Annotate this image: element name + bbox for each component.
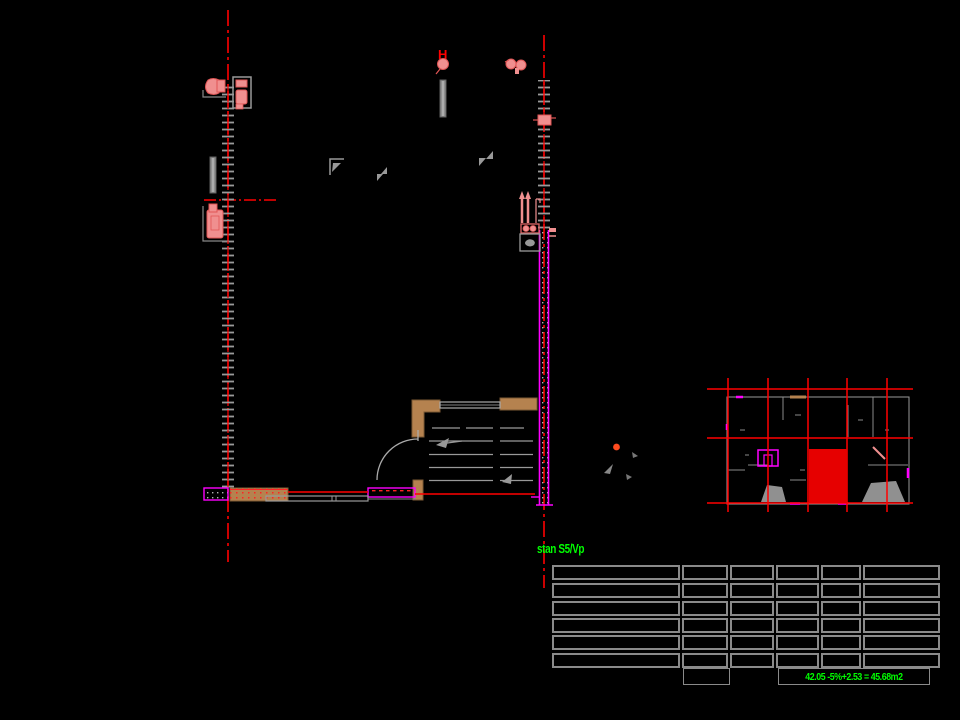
area-formula-text: 42.05 -5%+2.53 = 45.68m2 <box>805 671 902 683</box>
table-cell <box>863 601 940 616</box>
table-cell <box>682 601 728 616</box>
table-cell <box>863 565 940 580</box>
area-table: 42.05 -5%+2.53 = 45.68m2 <box>552 563 944 688</box>
table-cell <box>776 653 819 668</box>
apartment-title-label: stan S5/Vp <box>537 542 584 556</box>
bottom-wall-left-masonry <box>204 488 228 500</box>
radiator-left <box>210 157 216 193</box>
table-cell <box>730 601 774 616</box>
table-cell <box>863 618 940 633</box>
table-cell <box>821 653 861 668</box>
table-cell <box>552 583 680 598</box>
table-cell <box>552 635 680 650</box>
annotation-mark <box>604 444 638 480</box>
table-cell <box>682 635 728 650</box>
table-cell <box>552 601 680 616</box>
area-formula-cell: 42.05 -5%+2.53 = 45.68m2 <box>778 668 930 685</box>
wall-lamp-symbol-2 <box>479 151 493 166</box>
table-cell <box>821 565 861 580</box>
table-cell <box>776 583 819 598</box>
table-cell <box>821 601 861 616</box>
meter-panel <box>521 224 539 233</box>
corner-lamp-symbol <box>330 159 344 175</box>
table-cell <box>682 653 728 668</box>
entrance-wall-wood <box>412 398 537 500</box>
right-exterior-wall <box>531 230 553 505</box>
window-top <box>440 402 500 408</box>
shaft-box <box>520 234 540 251</box>
table-cell <box>682 618 728 633</box>
stairs <box>429 428 533 481</box>
table-cell <box>821 635 861 650</box>
table-cell <box>730 653 774 668</box>
radiator-top <box>440 80 446 117</box>
table-cell <box>682 583 728 598</box>
sink-cabinet-fixture <box>233 77 251 109</box>
table-cell <box>863 635 940 650</box>
table-cell <box>552 565 680 580</box>
table-cell <box>682 565 728 580</box>
entry-wall-hatched <box>368 488 416 499</box>
wall-lamp-symbol-1 <box>377 167 387 181</box>
vent-fixture <box>505 59 526 74</box>
pipe-stub-right <box>549 228 556 236</box>
riser-pipes <box>519 191 540 223</box>
table-cell <box>776 601 819 616</box>
table-cell <box>776 635 819 650</box>
table-cell <box>776 565 819 580</box>
key-plan <box>707 378 913 512</box>
stair-direction-arrow <box>436 438 512 484</box>
key-plan-stairs-right <box>862 481 905 502</box>
table-cell <box>821 583 861 598</box>
table-cell <box>776 618 819 633</box>
table-cell <box>863 583 940 598</box>
table-cell <box>730 618 774 633</box>
cad-drawing-canvas: H <box>0 0 960 720</box>
table-cell <box>821 618 861 633</box>
selected-apartment-highlight <box>809 449 847 503</box>
axis-marker-box <box>533 115 556 125</box>
table-cell <box>730 583 774 598</box>
table-cell <box>730 635 774 650</box>
table-cell <box>552 618 680 633</box>
table-footer-small-cell <box>683 668 730 685</box>
table-cell <box>730 565 774 580</box>
table-cell <box>552 653 680 668</box>
key-plan-stairs-left <box>761 485 786 502</box>
bottom-wall-wood <box>230 488 288 501</box>
key-plan-pink-mark <box>873 447 885 459</box>
table-cell <box>863 653 940 668</box>
